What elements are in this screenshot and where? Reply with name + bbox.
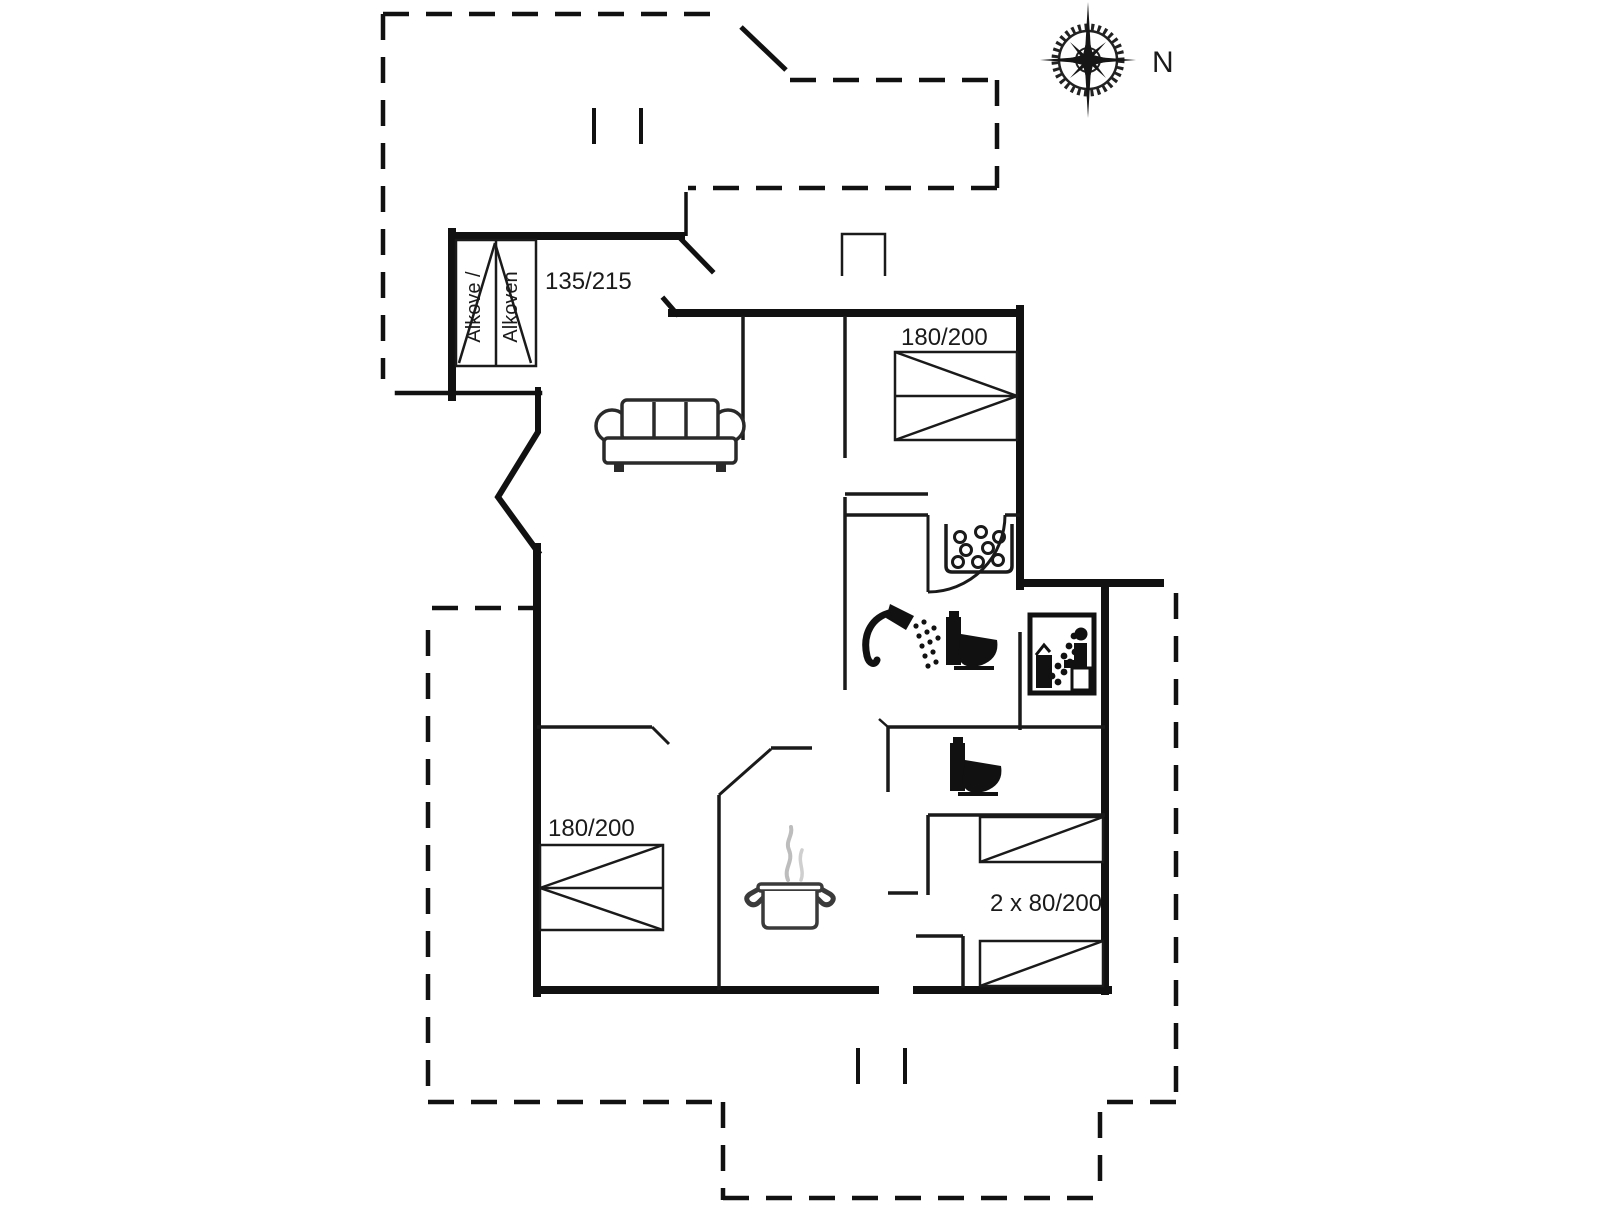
bed-bottom-left-label: 180/200 (548, 815, 635, 842)
toilet-icon-bath (946, 611, 997, 670)
alkove-size-label: 135/215 (545, 268, 632, 295)
shower-icon (866, 604, 941, 669)
north-label: N (1152, 46, 1174, 79)
bed-top-right-label: 180/200 (901, 324, 988, 351)
floor-plan-canvas: Alkove / Alkoven 135/215 180/200 180/200… (0, 0, 1606, 1205)
overhang-lines (686, 27, 786, 236)
toilet-icon-wc (950, 737, 1001, 796)
floor-plan-drawing: Alkove / Alkoven 135/215 180/200 180/200… (0, 0, 1606, 1205)
double-bed-top-right (895, 352, 1017, 440)
double-bed-bottom-left (540, 845, 663, 930)
single-bed-upper (980, 817, 1103, 862)
terrace-outline-dashed (383, 14, 1176, 1200)
sauna-icon (1030, 615, 1094, 693)
hob-icon (946, 524, 1012, 572)
entrance-step-ticks (594, 108, 905, 1084)
alkove-label-line2: Alkoven (500, 271, 522, 342)
sofa-icon (596, 400, 744, 472)
bunk-beds-label: 2 x 80/200 (990, 890, 1102, 917)
bath-door-arc (928, 515, 1005, 592)
flue-box (842, 234, 885, 276)
compass-rose-icon (1040, 2, 1136, 118)
alkove-label-line1: Alkove / (463, 271, 485, 343)
single-bed-lower (980, 941, 1103, 986)
cooking-pot-icon (747, 827, 834, 928)
